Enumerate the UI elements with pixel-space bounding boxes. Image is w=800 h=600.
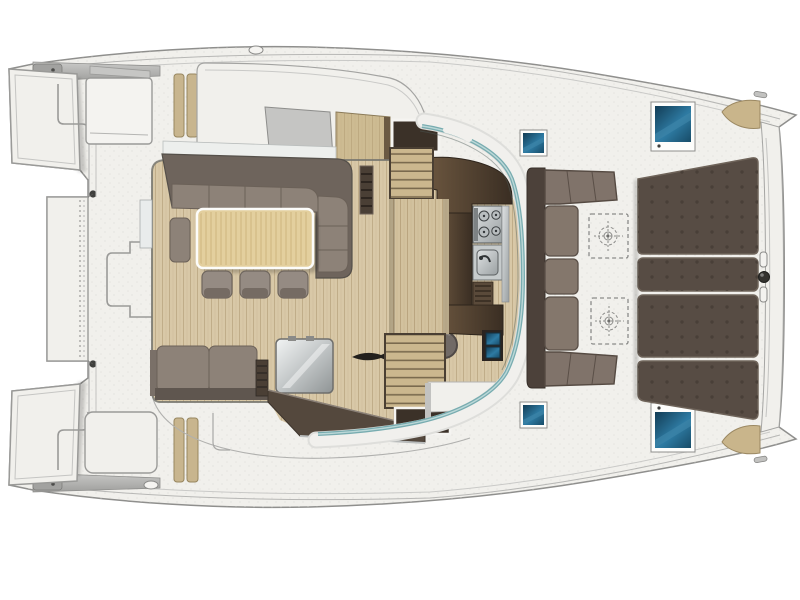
sink xyxy=(473,245,502,280)
catamaran-layout-canvas xyxy=(0,0,800,600)
sofa-armrest-pad xyxy=(170,218,190,262)
hatch-small-port xyxy=(520,130,547,156)
bench-cushion xyxy=(545,297,578,350)
stove xyxy=(473,206,502,243)
cooler-box xyxy=(276,336,333,393)
bench-corner-seat-port xyxy=(545,170,617,204)
cleat-dot-port xyxy=(51,68,55,72)
bench-backrest-band xyxy=(527,168,545,388)
transom-step-starboard xyxy=(9,384,80,485)
bench-cushion xyxy=(545,259,578,294)
counter-end-panel xyxy=(502,206,509,302)
fridge-drawer-blue xyxy=(486,333,500,345)
stool xyxy=(240,271,270,298)
bench-corner-seat-starboard xyxy=(545,352,617,386)
bench-cushion xyxy=(545,206,578,256)
deck-plan-drawing xyxy=(0,0,800,600)
walkway-shadow-left xyxy=(389,199,395,334)
sunpad-panel-3-dots xyxy=(638,295,758,357)
bridle-knob xyxy=(759,272,770,283)
bow-cleat-starboard xyxy=(754,456,768,463)
central-walkway-grain xyxy=(389,199,449,334)
cabin-top-panel-starboard xyxy=(85,412,157,473)
port-companionway-stairs xyxy=(390,148,433,199)
sink-bowl xyxy=(477,250,498,275)
transom-step-port xyxy=(9,69,80,170)
hatch-large-starboard xyxy=(651,403,695,452)
fridge-drawers xyxy=(482,330,503,361)
sunpad-left-shadow xyxy=(634,179,638,400)
louver-vent-forward xyxy=(360,166,373,214)
bow-cleat-port xyxy=(754,91,768,98)
oval-cleat-bottom xyxy=(144,481,158,489)
bench-cushion xyxy=(209,346,257,392)
sofa-seat-right-run xyxy=(318,196,348,272)
bench-backrest xyxy=(155,388,268,400)
window-sill-left xyxy=(140,200,152,248)
hatch-hinge-dot xyxy=(657,406,660,409)
faucet-base xyxy=(479,256,483,260)
dining-table xyxy=(197,209,318,273)
step-pad xyxy=(187,418,198,482)
aft-platform xyxy=(47,197,88,361)
hatch-small-starboard xyxy=(520,402,547,428)
cooler-hinge xyxy=(288,336,296,341)
oval-cleat-top xyxy=(249,46,263,54)
bridle-pin xyxy=(760,287,767,302)
bridle-knob-highlight xyxy=(760,273,764,277)
cabinet-wood-grain xyxy=(336,112,390,164)
under-sink-louver xyxy=(473,282,493,305)
stool xyxy=(202,271,232,298)
bench-louver-vent xyxy=(256,360,268,396)
hatch-hinge-dot xyxy=(657,144,660,147)
companionway-cabinet xyxy=(336,112,390,164)
stair-treads xyxy=(390,148,433,199)
walkway-shadow-right xyxy=(443,199,449,334)
aft-bench xyxy=(150,346,268,400)
stove-control-strip xyxy=(474,208,478,241)
bridle-pin xyxy=(760,252,767,267)
hatch-large-port xyxy=(651,102,695,151)
stools xyxy=(202,271,308,298)
table-grain xyxy=(200,212,310,265)
sunpad-panel-2-dots xyxy=(638,258,758,291)
fridge-drawer-blue xyxy=(486,347,500,358)
cooler-hinge xyxy=(306,336,314,341)
bench-cushion xyxy=(157,346,209,392)
step-pad xyxy=(174,74,184,137)
step-pad xyxy=(187,74,198,137)
foredeck-sunpads xyxy=(634,158,758,419)
stool xyxy=(278,271,308,298)
